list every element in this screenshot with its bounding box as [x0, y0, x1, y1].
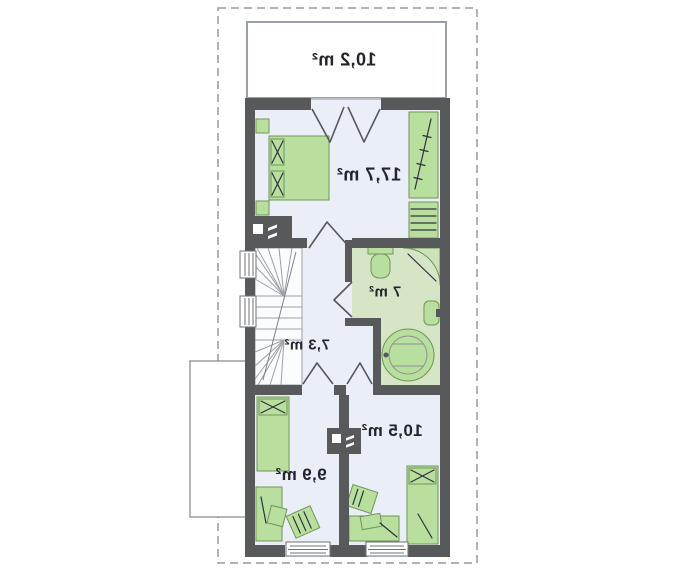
toilet-tank-icon	[368, 247, 393, 254]
room-label-bedroom-right: 10,5 m²	[361, 421, 422, 441]
room-label-terrace: 10,2 m²	[312, 50, 377, 71]
tub-tap-icon	[384, 353, 389, 358]
nightstand-icon	[256, 201, 269, 215]
tap-icon	[436, 309, 440, 317]
round-bathtub-icon	[382, 329, 434, 381]
dormer-outline	[190, 361, 247, 517]
window-left-2	[240, 296, 256, 327]
room-label-bedroom-large: 17,7 m²	[337, 165, 402, 186]
dresser-icon	[409, 202, 438, 238]
chimney-bottom	[327, 428, 361, 454]
staircase	[255, 248, 302, 385]
wardrobe-icon	[409, 112, 438, 198]
room-label-bathroom: 7 m²	[369, 284, 401, 301]
chair-icon	[360, 513, 382, 529]
window-bottom-2	[366, 542, 408, 556]
chimney-top	[245, 216, 292, 245]
toilet-icon	[371, 254, 390, 278]
flue-icon	[253, 224, 263, 234]
room-label-bedroom-left: 9,9 m²	[275, 465, 327, 485]
floor-plan-canvas: 10,2 m² 17,7 m² 7 m² 7,3 m² 10,5 m² 9,9 …	[0, 0, 700, 575]
window-bottom-1	[286, 542, 330, 556]
room-label-hallway: 7,3 m²	[284, 337, 330, 354]
floor-plan-svg	[0, 0, 700, 575]
nightstand-icon	[256, 119, 269, 133]
window-left-1	[240, 251, 256, 278]
flue-icon	[332, 434, 341, 443]
